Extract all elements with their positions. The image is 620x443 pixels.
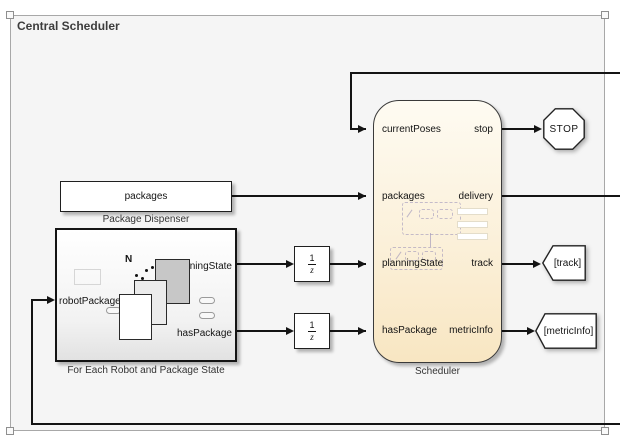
arrowhead-track bbox=[533, 260, 541, 268]
scheduler-input-currentposes: currentPoses bbox=[382, 124, 441, 136]
unit-delay-2-block[interactable]: 1 z bbox=[294, 313, 330, 349]
wire-planningstate-a[interactable] bbox=[237, 263, 287, 265]
area-title: Central Scheduler bbox=[17, 19, 120, 33]
wire-haspackage-a[interactable] bbox=[237, 330, 287, 332]
chart-preview-bar bbox=[457, 208, 488, 215]
unit-delay-numerator: 1 bbox=[309, 254, 314, 263]
stop-label: STOP bbox=[543, 108, 585, 150]
wire-metricinfo[interactable] bbox=[502, 330, 527, 332]
wire-feedback-in[interactable] bbox=[31, 299, 48, 301]
goto-metricinfo-block[interactable]: [metricInfo] bbox=[535, 313, 597, 349]
area-resize-handle-bottom-right[interactable] bbox=[601, 427, 609, 435]
foreach-port-haspackage: hasPackage bbox=[177, 328, 232, 340]
goto-track-label: [track] bbox=[542, 245, 586, 281]
wire-currentposes-drop[interactable] bbox=[350, 72, 352, 130]
arrowhead-ud2-in bbox=[286, 327, 294, 335]
block-scheduler-chart[interactable]: currentPoses packages planningState hasP… bbox=[373, 100, 502, 363]
wire-delivery[interactable] bbox=[502, 195, 620, 197]
block-package-dispenser[interactable]: packages bbox=[60, 181, 232, 212]
foreach-pill-right-1 bbox=[199, 297, 215, 304]
area-resize-handle-bottom-left[interactable] bbox=[6, 427, 14, 435]
scheduler-output-stop: stop bbox=[474, 124, 493, 136]
arrowhead-ud1-in bbox=[286, 260, 294, 268]
arrowhead-planningstate bbox=[358, 260, 366, 268]
foreach-caption: For Each Robot and Package State bbox=[46, 365, 246, 376]
arrowhead-stop bbox=[534, 125, 542, 133]
iteration-dots-icon bbox=[135, 274, 138, 277]
chart-preview-watermark bbox=[419, 209, 434, 219]
package-dispenser-text: packages bbox=[125, 191, 168, 202]
scheduler-input-packages: packages bbox=[382, 191, 425, 203]
iteration-dots-icon bbox=[145, 269, 148, 272]
arrowhead-currentposes bbox=[358, 125, 366, 133]
area-resize-handle-top-left[interactable] bbox=[6, 11, 14, 19]
chart-preview-watermark bbox=[430, 233, 431, 247]
scheduler-output-delivery: delivery bbox=[459, 191, 493, 203]
foreach-faint-rect bbox=[74, 269, 101, 285]
wire-track[interactable] bbox=[502, 263, 534, 265]
unit-delay-denominator: z bbox=[310, 266, 314, 275]
package-dispenser-caption: Package Dispenser bbox=[60, 214, 232, 225]
scheduler-input-haspackage: hasPackage bbox=[382, 325, 437, 337]
unit-delay-numerator: 1 bbox=[309, 321, 314, 330]
goto-metricinfo-label: [metricInfo] bbox=[535, 313, 597, 349]
chart-preview-bar bbox=[457, 221, 488, 228]
goto-track-block[interactable]: [track] bbox=[542, 245, 586, 281]
wire-currentposes-top[interactable] bbox=[350, 72, 620, 74]
block-for-each-subsystem[interactable]: N planningState hasPackage robotPackage bbox=[55, 228, 237, 362]
arrowhead-packages bbox=[358, 192, 366, 200]
model-canvas: Central Scheduler packages Package Dispe… bbox=[0, 0, 620, 443]
foreach-iterator-label: N bbox=[125, 254, 132, 266]
wire-feedback-bottom[interactable] bbox=[31, 423, 620, 425]
unit-delay-denominator: z bbox=[310, 333, 314, 342]
foreach-pill-right-2 bbox=[199, 312, 215, 319]
iteration-dots-icon bbox=[151, 266, 154, 269]
stop-simulation-block[interactable]: STOP bbox=[543, 108, 585, 150]
scheduler-output-track: track bbox=[471, 258, 493, 270]
arrowhead-metricinfo bbox=[527, 327, 535, 335]
wire-packages[interactable] bbox=[232, 195, 366, 197]
chart-preview-bar bbox=[457, 233, 488, 240]
wire-stop[interactable] bbox=[502, 128, 536, 130]
area-resize-handle-top-right[interactable] bbox=[601, 11, 609, 19]
arrowhead-robotpackage bbox=[47, 296, 55, 304]
scheduler-caption: Scheduler bbox=[373, 366, 502, 377]
foreach-stack-front-icon bbox=[119, 294, 152, 340]
scheduler-output-metricinfo: metricInfo bbox=[449, 325, 493, 337]
unit-delay-icon: 1 z bbox=[308, 321, 316, 342]
unit-delay-icon: 1 z bbox=[308, 254, 316, 275]
unit-delay-1-block[interactable]: 1 z bbox=[294, 246, 330, 282]
scheduler-input-planningstate: planningState bbox=[382, 258, 443, 270]
wire-feedback-rise[interactable] bbox=[31, 299, 33, 425]
arrowhead-haspackage bbox=[358, 327, 366, 335]
chart-preview-watermark bbox=[437, 209, 453, 219]
